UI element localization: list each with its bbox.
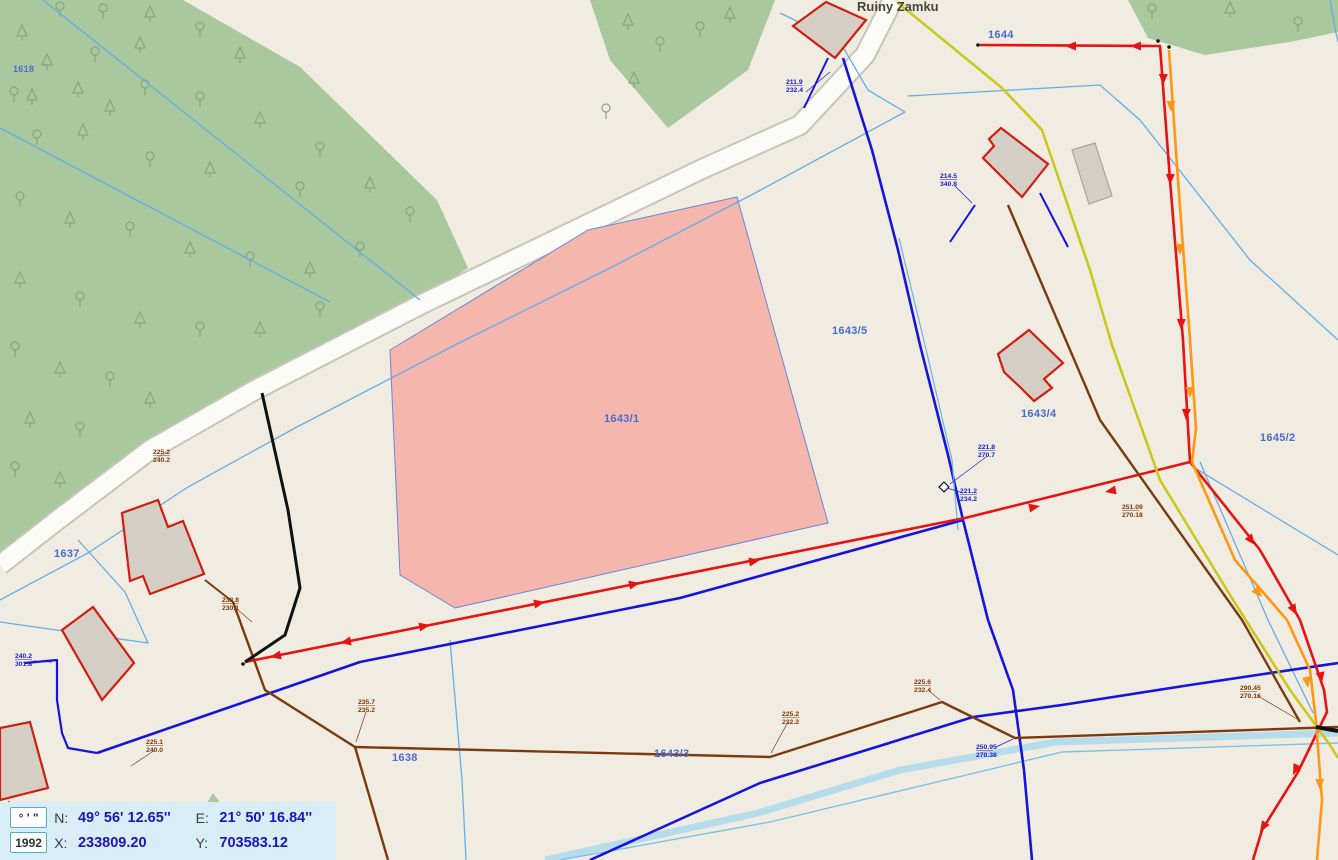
parcel-number-label: 1643/3 xyxy=(654,748,689,760)
yellow-line xyxy=(897,2,1338,758)
elevation-label-top: 221.2 xyxy=(960,488,977,495)
dms-format-button[interactable]: ° ' " xyxy=(10,807,47,828)
y-value: 703583.12 xyxy=(219,835,330,851)
parcel-boundary xyxy=(1195,468,1338,555)
coordinate-panel: ° ' " N: 49° 56' 12.65'' E: 21° 50' 16.8… xyxy=(0,802,336,860)
node-dot-icon xyxy=(1156,39,1160,43)
flow-arrow-icon xyxy=(1177,319,1186,330)
elevation-label-bottom: 235.2 xyxy=(358,707,375,714)
flow-arrow-icon xyxy=(1182,409,1191,420)
title-layer: Ruiny Zamku xyxy=(857,0,939,14)
parcel-number-label: 1618 xyxy=(13,64,34,74)
blue-stub-b xyxy=(950,205,975,242)
elevation-label-top: 214.5 xyxy=(940,173,957,180)
flow-arrow-icon xyxy=(1159,74,1168,85)
elevation-label-top: 250.95 xyxy=(976,744,997,751)
blue-thin-parallel xyxy=(899,238,958,530)
elevation-label-top: 251.09 xyxy=(1122,504,1143,511)
building-1637-a xyxy=(122,500,204,594)
elevation-label-bottom: 232.4 xyxy=(914,687,931,694)
black-line-1 xyxy=(245,393,300,662)
building-1637-b xyxy=(62,607,134,700)
elevation-label-top: 225.6 xyxy=(914,679,931,686)
map-title-ruiny-zamku: Ruiny Zamku xyxy=(857,0,939,14)
building-1643-4 xyxy=(998,330,1063,401)
elevation-label-bottom: 232.2 xyxy=(782,719,799,726)
elevation-label-bottom: 301.8 xyxy=(15,661,32,668)
elevation-label-top: 225.2 xyxy=(153,449,170,456)
elevation-label-bottom: 240.2 xyxy=(153,457,170,464)
parcel-number-label: 1638 xyxy=(392,752,418,764)
valve-diamond-icon xyxy=(939,482,949,492)
elevation-label-bottom: 230.1 xyxy=(222,605,239,612)
flow-arrow-icon xyxy=(1028,502,1041,513)
flow-arrow-icon xyxy=(1166,174,1175,185)
parcel-number-label: 1643/4 xyxy=(1021,408,1057,420)
x-value: 233809.20 xyxy=(78,835,189,851)
blue-stub-c xyxy=(1040,193,1068,247)
elevation-label-bottom: 234.2 xyxy=(960,496,977,503)
deciduous-tree-icon xyxy=(602,104,610,112)
brown-line-2 xyxy=(233,602,1338,757)
flow-arrow-icon xyxy=(1065,42,1076,51)
node-dot-icon xyxy=(1167,45,1171,49)
elevation-label-top: 225.2 xyxy=(782,711,799,718)
node-dot-icon xyxy=(976,43,980,47)
elevation-label-bottom: 270.16 xyxy=(1240,693,1261,700)
parcel-number-label: 1637 xyxy=(54,548,80,560)
x-label: X: xyxy=(54,835,71,851)
y-label: Y: xyxy=(196,835,213,851)
elevation-label-top: 240.2 xyxy=(15,653,32,660)
lon-label: E: xyxy=(196,810,213,826)
elevation-label-top: 238.8 xyxy=(222,597,239,604)
elevation-label-top: 235.7 xyxy=(358,699,375,706)
parcel-boundary xyxy=(908,85,1338,340)
building-gray xyxy=(1072,143,1112,204)
flow-arrow-icon xyxy=(1315,779,1324,790)
geographic-coords-row: ° ' " N: 49° 56' 12.65'' E: 21° 50' 16.8… xyxy=(10,807,330,828)
flow-arrow-icon xyxy=(1288,603,1301,617)
elevation-label-top: 211.9 xyxy=(786,79,803,86)
parcel-number-label: 1644 xyxy=(988,29,1014,41)
lat-value: 49° 56' 12.65'' xyxy=(78,810,189,826)
parcel-number-label: 1643/5 xyxy=(832,325,867,337)
elevation-label-bottom: 270.38 xyxy=(976,752,997,759)
building-sw-partial xyxy=(0,722,48,800)
elevation-label-top: 290.45 xyxy=(1240,685,1261,692)
elevation-label-bottom: 240.0 xyxy=(146,747,163,754)
flow-arrow-icon xyxy=(1104,485,1117,496)
forest-mid xyxy=(590,0,775,128)
elevation-label-top: 221.8 xyxy=(978,444,995,451)
elevation-label-top: 225.1 xyxy=(146,739,163,746)
parcel-number-label: 1645/2 xyxy=(1260,432,1295,444)
elevation-label-bottom: 340.8 xyxy=(940,181,957,188)
parcel-number-label: 1643/1 xyxy=(604,413,639,425)
projected-coords-row: 1992 X: 233809.20 Y: 703583.12 xyxy=(10,832,330,853)
flow-arrow-icon xyxy=(748,556,761,567)
elevation-label-bottom: 270.7 xyxy=(978,452,995,459)
building-ne-1 xyxy=(983,128,1048,197)
elevation-label-bottom: 270.18 xyxy=(1122,512,1143,519)
lat-label: N: xyxy=(54,810,71,826)
crs-1992-button[interactable]: 1992 xyxy=(10,832,47,853)
elevation-label-bottom: 232.4 xyxy=(786,87,803,94)
brown-line-2b xyxy=(355,747,388,860)
node-dot-icon xyxy=(241,662,245,666)
map-canvas[interactable]: 211.9232.4214.5340.8221.8270.7221.2234.2… xyxy=(0,0,1338,860)
lon-value: 21° 50' 16.84'' xyxy=(219,810,330,826)
flow-arrow-icon xyxy=(1130,42,1141,51)
